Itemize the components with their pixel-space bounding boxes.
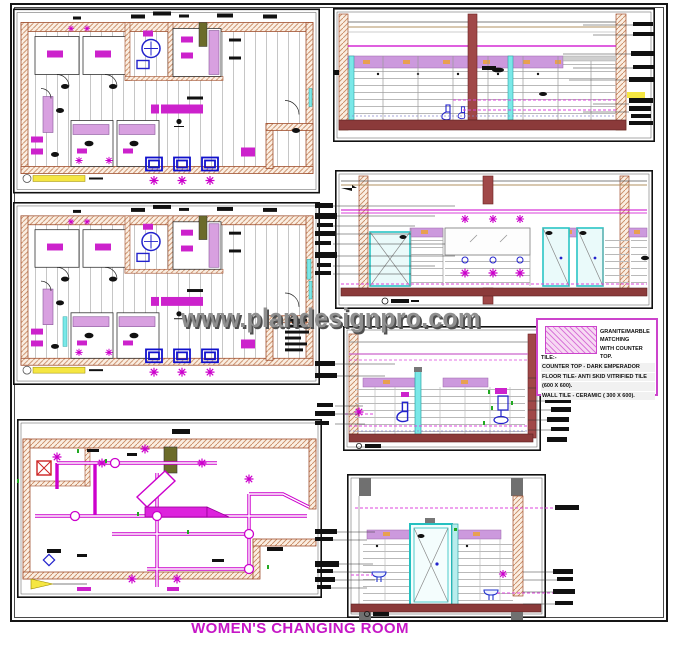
- finish-legend: GRANITE/MARBLE MATCHING WITH COUNTER TOP…: [536, 318, 658, 396]
- floor-plan-top: [13, 8, 320, 194]
- elevation-d: [315, 474, 583, 622]
- legend-line: (600 X 600).: [541, 382, 655, 391]
- legend-lines: COUNTER TOP - DARK EMPERADOR FLOOR TILE-…: [541, 363, 655, 401]
- legend-line: FLOOR TILE- ANTI SKID VITRIFIED TILE: [541, 373, 655, 382]
- watermark-text: www.plandesignpro.com: [181, 303, 501, 334]
- granite-hatch-swatch: [545, 326, 597, 354]
- drawing-sheet: GRANITE/MARBLE MATCHING WITH COUNTER TOP…: [0, 0, 682, 645]
- sheet-title: WOMEN'S CHANGING ROOM: [140, 620, 460, 637]
- tile-heading: TILE:-: [541, 355, 557, 361]
- elevation-b: [315, 170, 655, 312]
- legend-line: WALL TILE - CERAMIC ( 300 X 600).: [541, 392, 655, 401]
- elevation-a: [333, 8, 668, 145]
- legend-line: COUNTER TOP - DARK EMPERADOR: [541, 363, 655, 372]
- swatch-label-line1: GRANITE/MARBLE MATCHING: [600, 329, 650, 343]
- swatch-label-line2: WITH COUNTER TOP.: [600, 346, 643, 360]
- swatch-label: GRANITE/MARBLE MATCHING WITH COUNTER TOP…: [600, 328, 656, 361]
- plumbing-plan: [17, 419, 322, 598]
- floor-plan-middle: [13, 202, 320, 385]
